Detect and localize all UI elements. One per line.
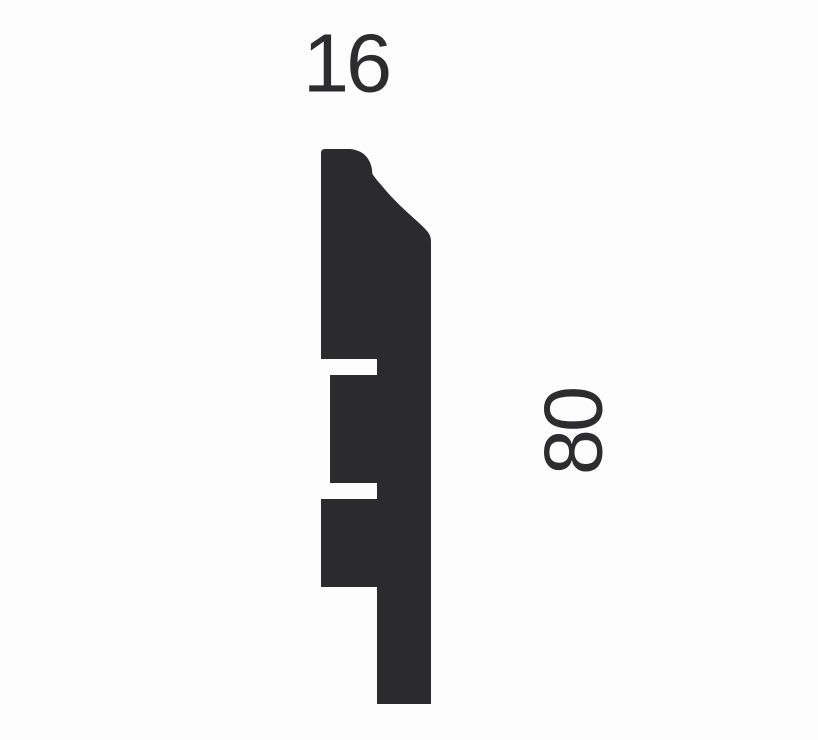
- profile-path: [321, 149, 431, 704]
- profile-shape: [0, 0, 818, 740]
- diagram-canvas: 16 80: [0, 0, 818, 740]
- height-dimension-label: 80: [532, 389, 615, 475]
- width-dimension-label: 16: [303, 22, 389, 105]
